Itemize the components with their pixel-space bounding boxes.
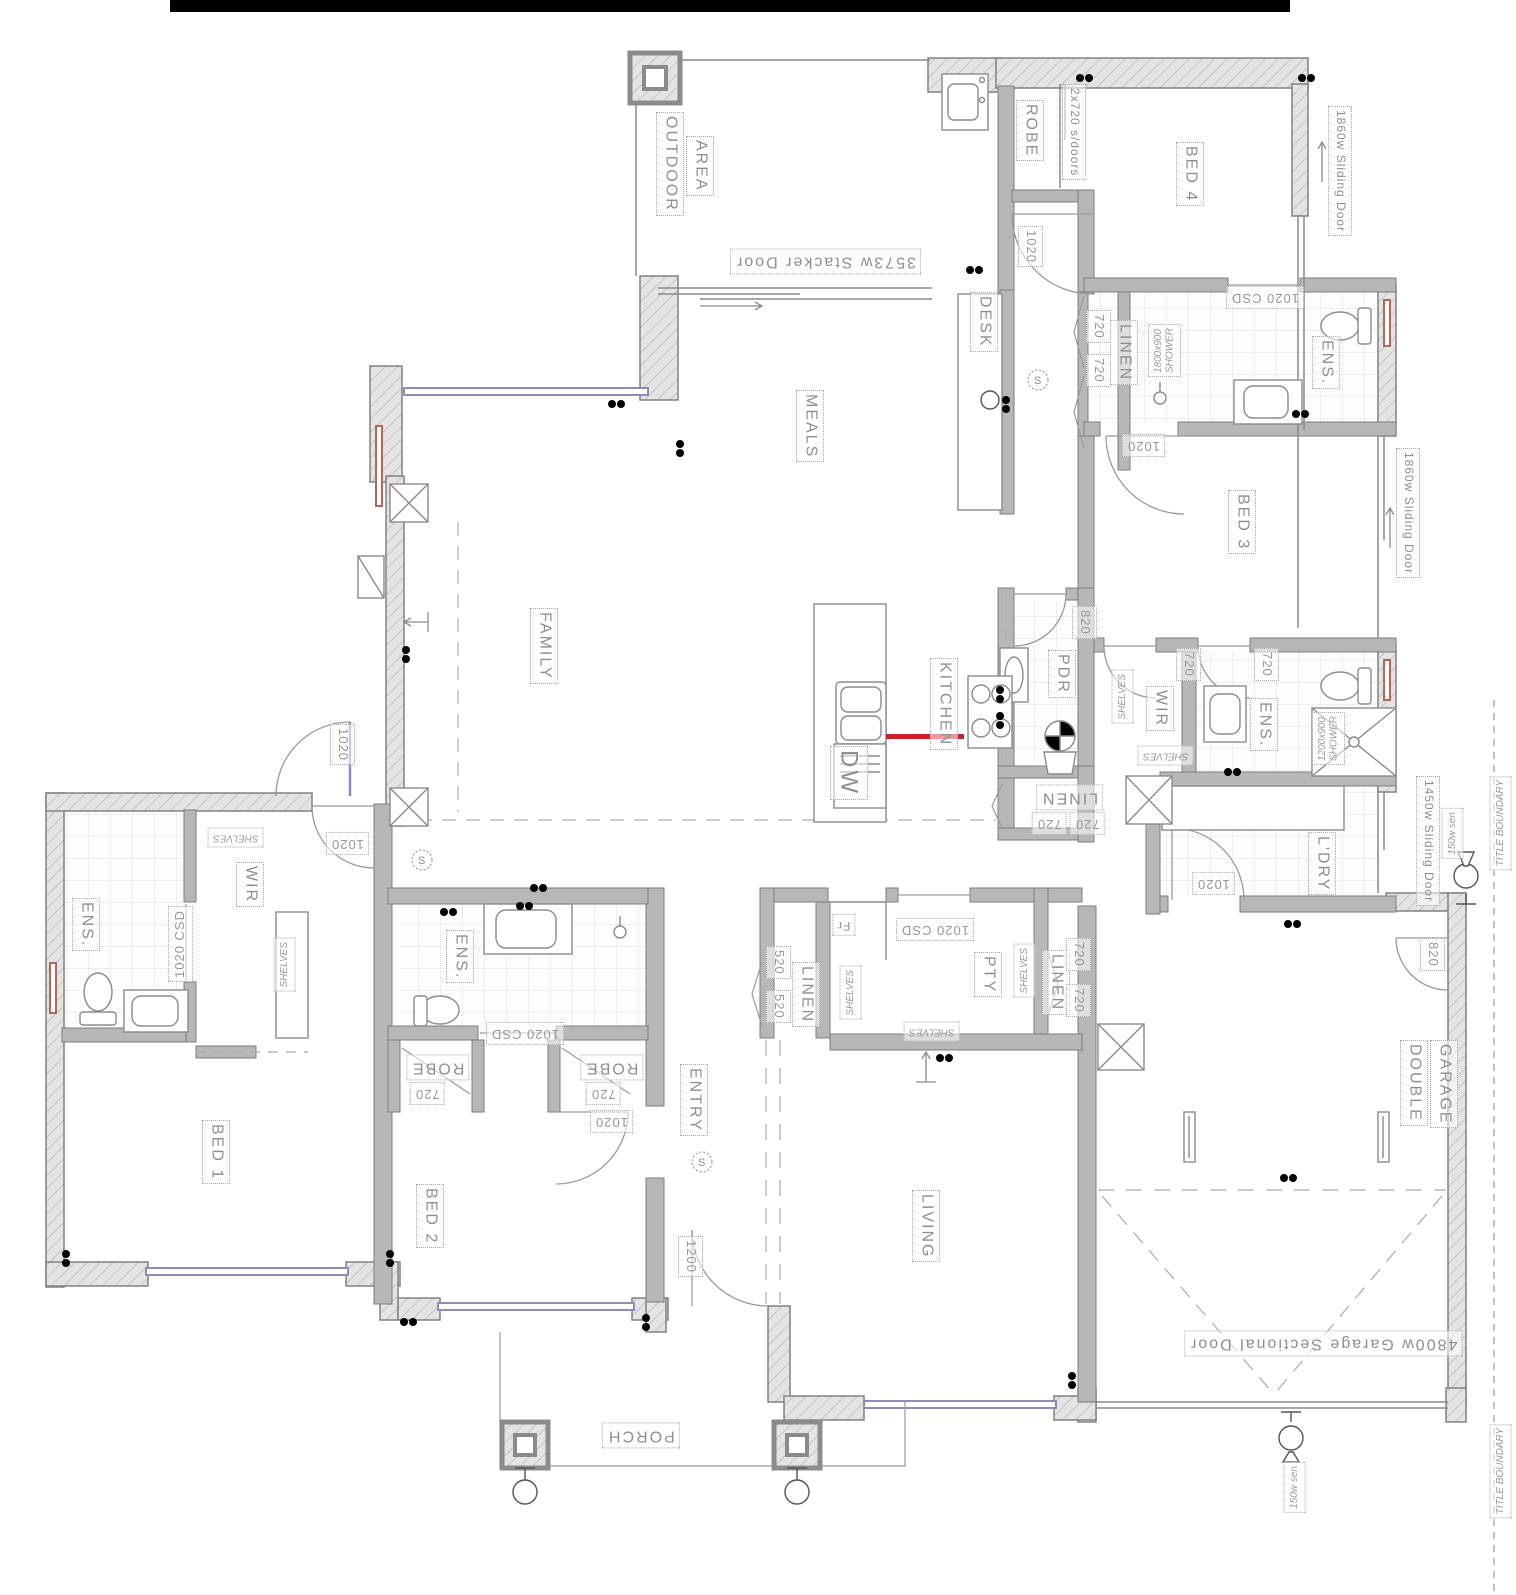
smoke-s3: S [698,1157,705,1169]
label-family: FAMILY [530,608,558,684]
cooktop [968,676,1012,748]
label-dim-720-lg-b: 720 [1066,984,1091,1017]
label-shelves-pty-a: SHELVES [840,966,862,1020]
label-sen-right: 150w sen [1442,808,1464,859]
garage-xbox [1098,1024,1144,1070]
label-title-boundary-2: TITLE BOUNDARY [1490,1424,1512,1518]
porch-light-2 [785,1468,809,1504]
floor-plan: S S S OUTDOOR AREA 3573w [0,0,1516,1595]
laundry-bench [1162,786,1344,830]
label-linen-entry: LINEN [792,962,820,1027]
label-linen-kitchen: LINEN [1036,784,1103,810]
label-shelves-pty-c: SHELVES [904,1022,960,1042]
vanity-ens-bed1 [124,990,188,1032]
label-shelves-wir1-a: SHELVES [208,828,264,848]
label-dim-720-lg-a: 720 [1066,938,1091,971]
smoke-s2: S [418,855,425,867]
label-sen-garage: 150w sen [1284,1462,1306,1513]
label-shelves-wir3-b: SHELVES [1138,746,1194,766]
label-dim-1200-door: 1200 [678,1236,703,1277]
label-ens-bed3: ENS. [1250,698,1278,751]
label-sliding-door-ldry: 1450w Sliding Door [1416,776,1440,906]
label-linen-bed4: LINEN [1110,320,1138,385]
label-entry: ENTRY [680,1064,708,1136]
garage-pier-1 [1184,1112,1195,1162]
label-shower-ens3: 1200x900 SHOWER [1312,712,1345,765]
label-dim-720-lk-a: 720 [1032,812,1067,835]
porch-post-2 [774,1422,820,1468]
vanity-ens-bed2 [484,904,572,954]
meter-box [358,556,384,598]
sensor-light-garage [1279,1412,1303,1462]
label-dim-720-ens3: 720 [1254,648,1279,681]
label-csd-ens1: 1020 CSD [168,906,193,982]
label-desk: DESK [970,292,998,352]
smoke-s1: S [1034,375,1041,387]
label-dim-720-robe-b: 720 [586,1082,621,1105]
bbq-sink [942,74,988,130]
label-ens-bed1: ENS. [72,898,100,951]
label-bed1: BED 1 [202,1120,230,1184]
label-dim-1020-bed1: 1020 [326,832,369,855]
label-sliding-door-bed3: 1860w Sliding Door [1396,448,1420,578]
label-stacker-door: 3573w Stacker Door [730,248,921,274]
label-dim-720-linen4b: 720 [1086,354,1111,387]
label-robe-bed2-a: ROBE [406,1054,469,1080]
label-wir-bed3: WIR [1146,686,1174,731]
linen-xbox [1126,776,1172,824]
label-bed2: BED 2 [416,1184,444,1248]
label-shelves-wir3-a: SHELVES [1112,670,1134,724]
label-dim-820-pdr: 820 [1072,606,1097,639]
label-kitchen: KITCHEN [930,658,958,750]
vanity-ens-bed3 [1204,686,1246,742]
vanity-ens-bed4 [1234,380,1302,424]
label-csd-pty: 1020 CSD [896,918,974,941]
porch-post-1 [502,1422,548,1468]
smoke-detectors: S S S [412,370,1048,1172]
label-shelves-wir1-b: SHELVES [274,938,296,992]
label-dim-720-linen4a: 720 [1086,310,1111,343]
label-dim-520-b: 520 [766,990,791,1023]
label-shelves-pty-b: SHELVES [1014,944,1036,998]
family-post-2 [390,788,428,826]
label-dim-1020-ldry: 1020 [1192,872,1235,895]
label-wir-bed1: WIR [236,862,264,907]
label-living: LIVING [912,1190,940,1262]
label-dim-1020-bed4: 1020 [1018,226,1043,267]
label-ens-bed4: ENS. [1312,336,1340,389]
label-garage-1: DOUBLE [1400,1040,1428,1126]
family-post-1 [390,484,428,522]
label-robe-bed2-b: ROBE [580,1054,643,1080]
label-title-boundary-1: TITLE BOUNDARY [1490,776,1512,870]
label-csd-ens2: 1020 CSD [486,1022,564,1045]
label-bed4: BED 4 [1176,142,1204,206]
label-dim-1020-bed2: 1020 [590,1110,633,1133]
label-outdoor-area-1: OUTDOOR [656,112,684,216]
label-outdoor-area-2: AREA [686,136,714,196]
label-dim-520-a: 520 [766,946,791,979]
label-ens-bed2: ENS. [446,930,474,983]
label-sliding-door-bed4: 1860w Sliding Door [1328,106,1352,236]
porch-light-1 [513,1468,537,1504]
label-garage-door: 4800w Garage Sectional Door [1184,1330,1462,1356]
label-dw: DW [830,746,868,800]
outdoor-post [630,53,680,103]
label-csd-ens4: 1020 CSD [1226,286,1304,309]
label-dim-720-wir3: 720 [1176,648,1201,681]
meals-light [981,391,999,409]
power-points [62,74,1315,1389]
label-robe-sdoors: 2x720 s/doors [1062,84,1086,180]
label-pty: PTY [974,952,1002,997]
garage-pier-2 [1378,1112,1389,1162]
label-dim-720-robe-a: 720 [410,1082,445,1105]
label-shower-ens4: 1800x900 SHOWER [1148,324,1181,377]
label-ldry: L'DRY [1308,832,1336,895]
label-robe-bed4: ROBE [1016,100,1044,161]
toilet-ens-bed2 [414,996,459,1026]
label-dim-720-lk-b: 720 [1070,812,1105,835]
label-dim-1020-bed3: 1020 [1122,434,1165,457]
label-meals: MEALS [796,390,824,462]
label-garage-2: GARAGE [1430,1040,1458,1128]
label-pdr: PDR [1048,650,1076,698]
label-porch: PORCH [602,1422,680,1448]
label-dim-1020-family: 1020 [330,724,355,765]
label-fridge: Fr [832,914,855,936]
label-bed3: BED 3 [1228,490,1256,554]
interior-walls [62,86,1396,1402]
label-dim-820-garage: 820 [1420,938,1445,971]
